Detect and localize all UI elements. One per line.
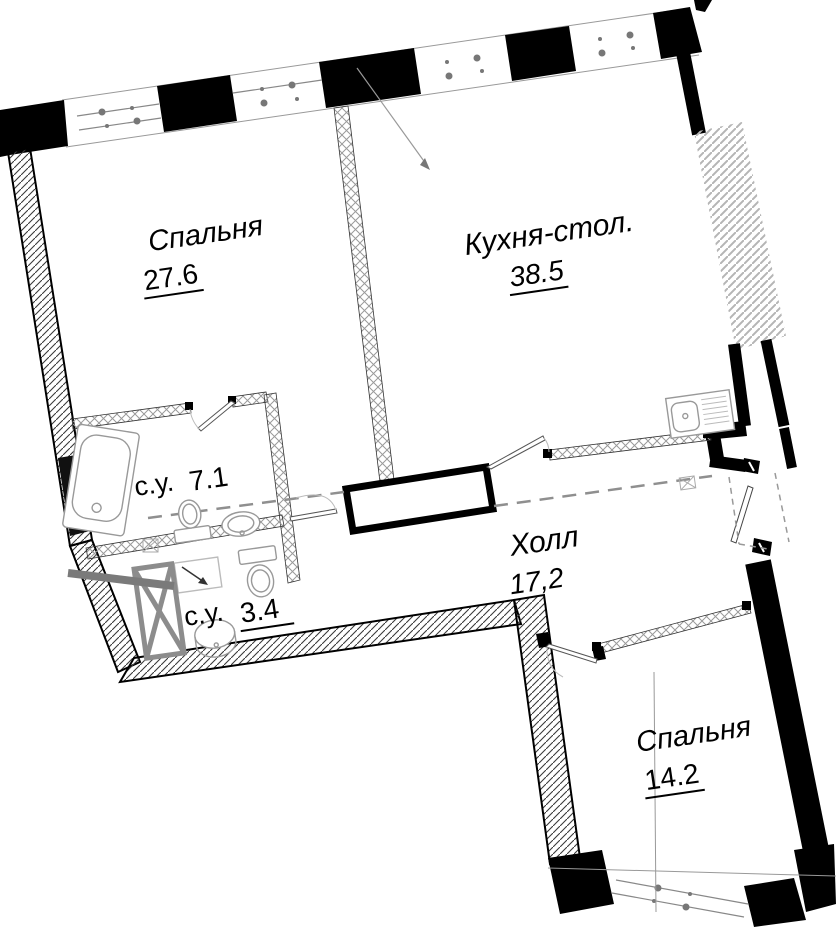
door-leaf-bathroom1	[198, 401, 235, 431]
partition-bedroom1-kitchen	[334, 106, 394, 482]
wall-corridor-right	[766, 340, 784, 426]
toilet	[238, 546, 281, 600]
partition-bedroom2-top	[598, 604, 751, 653]
column	[346, 467, 493, 531]
wall-pier	[505, 26, 576, 81]
room-label-kitchen: Кухня-стол. 38.5	[462, 205, 641, 301]
toilet	[170, 498, 211, 544]
partition-bathroom1-top	[231, 392, 268, 407]
wall-bedroom2-right	[758, 562, 820, 870]
room-name: Спальня	[146, 210, 265, 258]
wall-pier	[0, 100, 68, 157]
room-area: 27.6	[142, 258, 200, 297]
room-name: Кухня-стол.	[462, 205, 636, 262]
shower-tray	[174, 557, 222, 593]
room-name: Холл	[507, 520, 581, 563]
room-name: с.у.	[132, 467, 175, 502]
room-area: 7.1	[187, 461, 230, 497]
window-bedroom2	[612, 880, 748, 917]
wall-pier	[319, 48, 421, 108]
room-label-bathroom-1: с.у. 7.1	[132, 459, 230, 505]
floor-plan-drawing: Спальня 27.6 Кухня-стол. 38.5 с.у. 7.1 с…	[0, 0, 836, 927]
floor-plan-page: Спальня 27.6 Кухня-стол. 38.5 с.у. 7.1 с…	[0, 0, 836, 927]
wall-entry-sill	[710, 461, 746, 466]
door-leaf-kitchen	[487, 436, 545, 469]
door-swing-arc	[190, 409, 199, 429]
room-area: 17,2	[507, 562, 566, 601]
room-area: 14.2	[643, 758, 701, 797]
door-leaf-bathroom2	[290, 509, 337, 521]
room-label-bedroom-1: Спальня 27.6	[134, 210, 271, 299]
room-area: 38.5	[507, 254, 566, 293]
room-label-hall: Холл 17,2	[502, 520, 587, 600]
wall-entry-outer	[784, 428, 792, 468]
door-swing-arc	[296, 495, 336, 510]
wall-pier	[744, 878, 806, 927]
room-name: Спальня	[634, 711, 753, 759]
room-area: 3.4	[238, 593, 281, 629]
wall-entry-left	[734, 344, 745, 426]
leader-arrowhead	[420, 158, 430, 170]
room-name: с.у.	[182, 597, 225, 632]
wall-stub	[694, 0, 712, 12]
neighbor-hatch-strip	[694, 122, 786, 350]
room-label-bedroom-2: Спальня 14.2	[634, 711, 759, 799]
kitchen-sink	[666, 390, 735, 439]
wall-pier	[548, 850, 614, 914]
wall-elbow	[70, 540, 140, 672]
